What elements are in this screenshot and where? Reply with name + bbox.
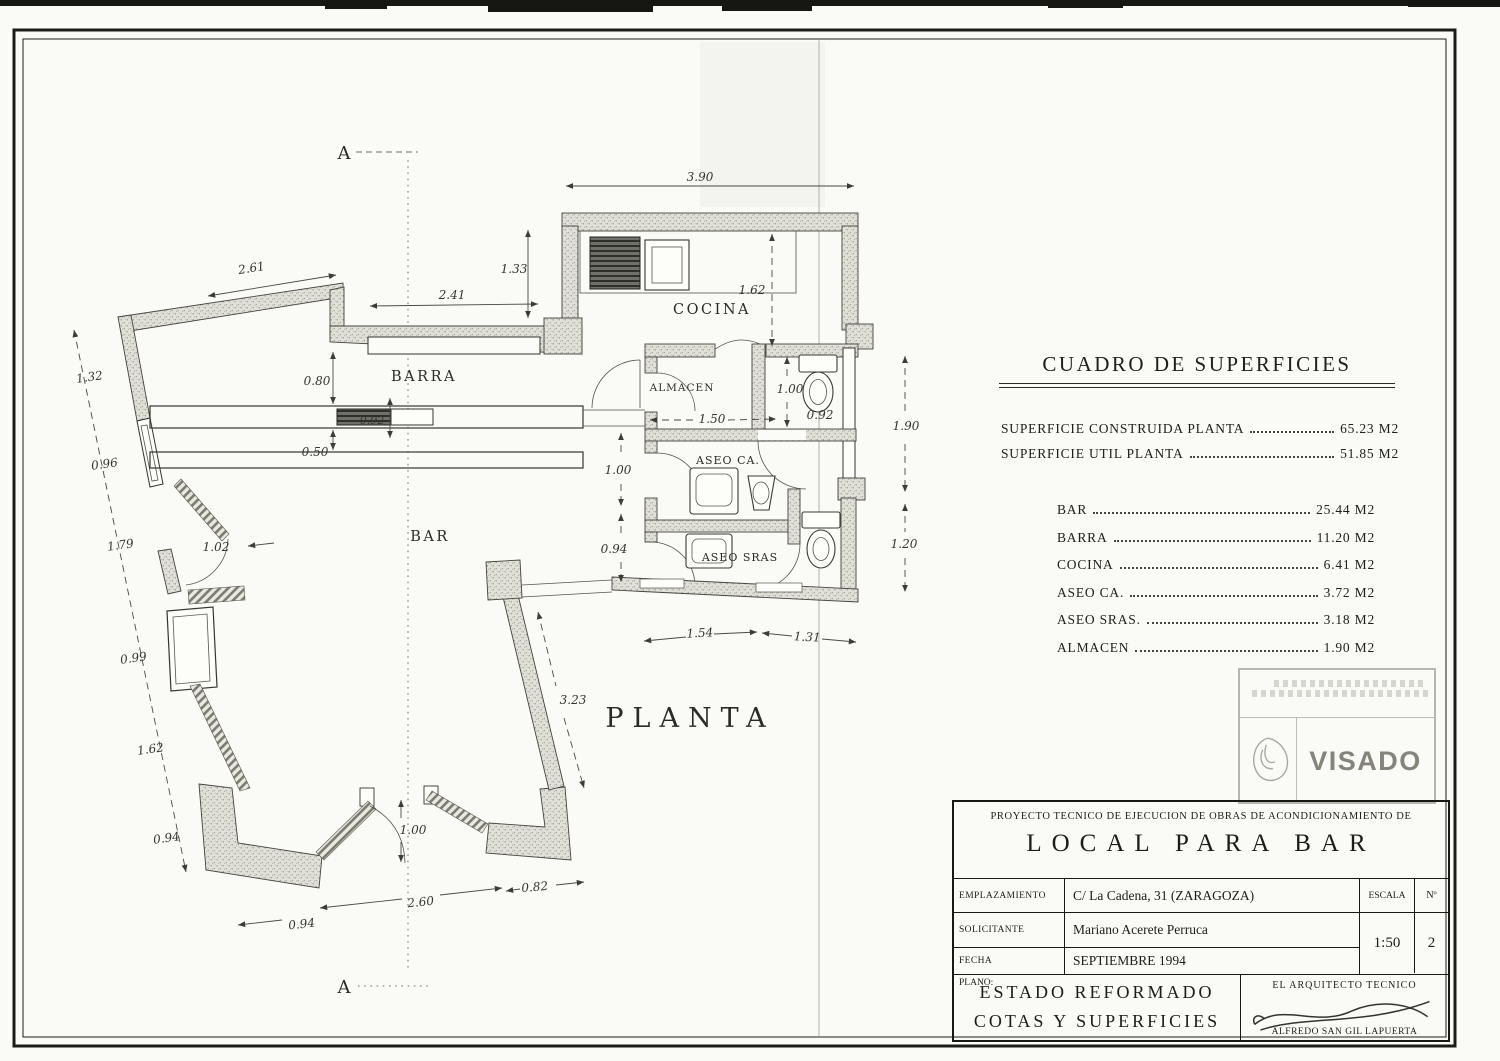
table-row: ASEO CA. 3.72 M2 — [1057, 579, 1375, 607]
dim-label: 1.33 — [501, 262, 528, 276]
visado-stamp: VISADO — [1238, 668, 1436, 804]
field-value: C/ La Cadena, 31 (ZARAGOZA) — [1065, 879, 1359, 912]
signature-cell: EL ARQUITECTO TECNICO ALFREDO SAN GIL LA… — [1241, 975, 1448, 1040]
wall-segment — [752, 344, 765, 441]
scale-number-block: ESCALA Nº 1:50 2 — [1359, 879, 1448, 974]
door-threshold — [756, 583, 802, 592]
scanned-floor-plan-sheet: A A — [0, 0, 1500, 1061]
field-label: FECHA — [954, 948, 1065, 974]
title-block: PROYECTO TECNICO DE EJECUCION DE OBRAS D… — [952, 800, 1450, 1042]
dim-label: 0.92 — [807, 408, 834, 422]
dim-label: 0.96 — [90, 455, 119, 473]
wall-step — [486, 560, 522, 600]
dim-label: 1.50 — [699, 412, 726, 426]
table-row: SUPERFICIE CONSTRUIDA PLANTA 65.23 M2 — [1001, 416, 1399, 441]
dim-label: 1.79 — [106, 536, 135, 554]
door-leaf — [174, 479, 229, 541]
wall-segment — [645, 357, 657, 373]
room-label-bar: BAR — [410, 529, 450, 545]
table-row: ASEO SRAS. 3.18 M2 — [1057, 606, 1375, 634]
dotted-leader — [1120, 567, 1318, 569]
dim-label: 0.94 — [601, 542, 628, 556]
door-leaf — [188, 586, 245, 604]
field-label: SOLICITANTE — [954, 913, 1065, 947]
wall-segment — [645, 498, 657, 522]
escala-label: ESCALA — [1360, 879, 1415, 912]
room-labels: COCINA BARRA BAR ALMACEN ASEO CA. ASEO S… — [391, 302, 778, 734]
section-marker-bottom: A — [337, 977, 352, 998]
room-label-cocina: COCINA — [673, 302, 751, 318]
dim-label: 2.60 — [406, 894, 435, 911]
dim-label: 0.99 — [119, 649, 148, 667]
row-label: SUPERFICIE UTIL PLANTA — [1001, 441, 1184, 466]
toilet-icon — [799, 355, 837, 412]
left-wall-openings — [137, 418, 250, 791]
row-value: 3.72 M2 — [1324, 579, 1375, 607]
scale-number-values: 1:50 2 — [1360, 913, 1448, 973]
wall-segment — [645, 532, 657, 542]
room-label-aseo-sras: ASEO SRAS — [701, 551, 778, 564]
bidet-icon — [748, 476, 775, 510]
dim-label: 0.82 — [521, 879, 549, 895]
plan-title: PLANTA — [605, 703, 774, 734]
counter-band — [150, 452, 583, 468]
stamp-header — [1240, 670, 1434, 718]
door-arc — [592, 360, 640, 408]
escala-value: 1:50 — [1360, 913, 1415, 973]
field-label: EMPLAZAMIENTO — [954, 879, 1065, 912]
row-label: ASEO CA. — [1057, 579, 1124, 607]
row-label: SUPERFICIE CONSTRUIDA PLANTA — [1001, 416, 1244, 441]
table-row: BAR 25.44 M2 — [1057, 496, 1375, 524]
table-row: SUPERFICIE UTIL PLANTA 51.85 M2 — [1001, 441, 1399, 466]
room-label-aseo-ca: ASEO CA. — [695, 454, 760, 467]
plano-line2: COTAS Y SUPERFICIES — [954, 1011, 1240, 1032]
wall-segment — [158, 549, 181, 594]
cooker-icon — [590, 237, 640, 289]
row-value: 6.41 M2 — [1324, 551, 1375, 579]
wall-segment — [562, 213, 858, 231]
title-block-bottom: PLANO: ESTADO REFORMADO COTAS Y SUPERFIC… — [954, 974, 1448, 1040]
wall-niche — [368, 337, 540, 354]
dim-label: 2.61 — [236, 259, 266, 277]
wall-segment — [118, 315, 150, 421]
dim-label: 1.90 — [893, 419, 920, 433]
row-value: 1.90 M2 — [1324, 634, 1375, 662]
stamp-smudge-text — [1274, 680, 1424, 687]
room-label-almacen: ALMACEN — [649, 382, 715, 394]
wall-segment — [841, 498, 856, 592]
scale-number-header: ESCALA Nº — [1360, 879, 1448, 913]
counter-unit — [391, 409, 433, 425]
wall-segment — [645, 344, 715, 357]
wall-segment — [645, 520, 790, 532]
field-value: Mariano Acerete Perruca — [1065, 913, 1359, 947]
architect-name: ALFREDO SAN GIL LAPUERTA — [1241, 1027, 1448, 1037]
dim-label: 3.23 — [560, 693, 587, 707]
section-line: A A — [337, 143, 433, 998]
plano-cell: PLANO: ESTADO REFORMADO COTAS Y SUPERFIC… — [954, 975, 1241, 1040]
row-label: COCINA — [1057, 551, 1114, 579]
visado-label: VISADO — [1297, 718, 1434, 804]
door-leaf — [190, 684, 250, 791]
dotted-leader — [1250, 431, 1334, 433]
row-value: 65.23 M2 — [1340, 416, 1399, 441]
stamp-smudge-text — [1252, 690, 1428, 697]
door-leaf — [316, 801, 376, 860]
dotted-leader — [1147, 622, 1318, 624]
row-label: ALMACEN — [1057, 634, 1129, 662]
dim-label: 0.50 — [302, 445, 329, 459]
stamp-body: VISADO — [1240, 718, 1434, 804]
sink-icon — [645, 240, 689, 290]
dim-label: 1.54 — [686, 625, 713, 640]
dotted-leader — [1130, 595, 1317, 597]
surface-table-title: CUADRO DE SUPERFICIES — [995, 352, 1399, 377]
table-row: BARRA 11.20 M2 — [1057, 524, 1375, 552]
project-line: PROYECTO TECNICO DE EJECUCION DE OBRAS D… — [954, 811, 1448, 822]
row-label: BARRA — [1057, 524, 1108, 552]
table-row: COCINA 6.41 M2 — [1057, 551, 1375, 579]
dim-label: 1.20 — [891, 537, 918, 551]
dim-label: 1.31 — [794, 629, 821, 644]
toilet-icon — [802, 512, 840, 568]
dim-label: 1.00 — [400, 823, 427, 837]
num-value: 2 — [1415, 913, 1448, 973]
row-value: 25.44 M2 — [1316, 496, 1375, 524]
dim-label: 1.62 — [136, 740, 164, 758]
surface-room-rows: BAR 25.44 M2 BARRA 11.20 M2 COCINA 6.41 … — [1057, 496, 1375, 661]
dotted-leader — [1135, 650, 1317, 652]
row-value: 11.20 M2 — [1317, 524, 1375, 552]
wall-segment — [503, 595, 564, 790]
field-value: SEPTIEMBRE 1994 — [1065, 948, 1359, 974]
wall-segment — [645, 429, 856, 441]
wall-segment — [788, 489, 800, 544]
dotted-leader — [1190, 456, 1335, 458]
row-label: ASEO SRAS. — [1057, 606, 1141, 634]
dotted-leader — [1093, 512, 1310, 514]
row-value: 3.18 M2 — [1324, 606, 1375, 634]
wall-pillar — [486, 787, 571, 860]
wall-segment — [843, 348, 855, 480]
dim-label: 0.94 — [288, 916, 316, 933]
dim-label: 0.94 — [152, 829, 180, 847]
section-marker-top: A — [337, 143, 352, 164]
dimension-lines — [74, 186, 905, 925]
room-label-barra: BARRA — [391, 369, 457, 385]
dimension-chain — [74, 330, 186, 872]
sink-icon — [690, 468, 738, 514]
architect-label: EL ARQUITECTO TECNICO — [1241, 980, 1448, 991]
row-label: BAR — [1057, 496, 1087, 524]
dim-label: 0.80 — [304, 374, 331, 388]
table-row: ALMACEN 1.90 M2 — [1057, 634, 1375, 662]
surface-summary: SUPERFICIE CONSTRUIDA PLANTA 65.23 M2 SU… — [1001, 416, 1399, 466]
wall-segment — [645, 412, 657, 429]
dim-label: 1.32 — [75, 368, 103, 386]
dim-label: 2.41 — [438, 288, 466, 302]
door-opening — [758, 430, 806, 440]
dim-label: 3.90 — [687, 170, 714, 184]
door-threshold — [640, 579, 684, 588]
dim-label: 0.92 — [360, 414, 385, 427]
field-row-fecha: FECHA SEPTIEMBRE 1994 — [954, 948, 1359, 974]
wall-pillar — [199, 784, 322, 888]
wall-segment — [544, 318, 582, 354]
row-value: 51.85 M2 — [1340, 441, 1399, 466]
project-title: LOCAL PARA BAR — [954, 830, 1448, 858]
wall-segment — [838, 478, 865, 500]
dim-label: 1.02 — [203, 540, 230, 554]
surface-table: CUADRO DE SUPERFICIES SUPERFICIE CONSTRU… — [995, 352, 1399, 661]
dim-label: 1.00 — [777, 382, 804, 396]
field-row-solicitante: SOLICITANTE Mariano Acerete Perruca — [954, 913, 1359, 948]
title-block-project: PROYECTO TECNICO DE EJECUCION DE OBRAS D… — [954, 802, 1448, 879]
dim-label: 1.00 — [605, 463, 632, 477]
surface-table-underline — [999, 383, 1395, 388]
door-leaf — [426, 791, 488, 833]
emblem-icon — [1246, 730, 1290, 792]
dotted-leader — [1114, 540, 1311, 542]
wall-segment — [645, 441, 657, 453]
plano-line1: ESTADO REFORMADO — [954, 982, 1240, 1003]
field-row-emplazamiento: EMPLAZAMIENTO C/ La Cadena, 31 (ZARAGOZA… — [954, 879, 1359, 913]
signature-icon — [1249, 992, 1439, 1032]
num-label: Nº — [1415, 879, 1448, 912]
dim-label: 1.62 — [739, 283, 766, 297]
wall-segment — [118, 283, 343, 331]
wall-segment — [842, 226, 858, 330]
stamp-emblem-icon — [1240, 718, 1297, 804]
plano-label: PLANO: — [959, 978, 993, 988]
